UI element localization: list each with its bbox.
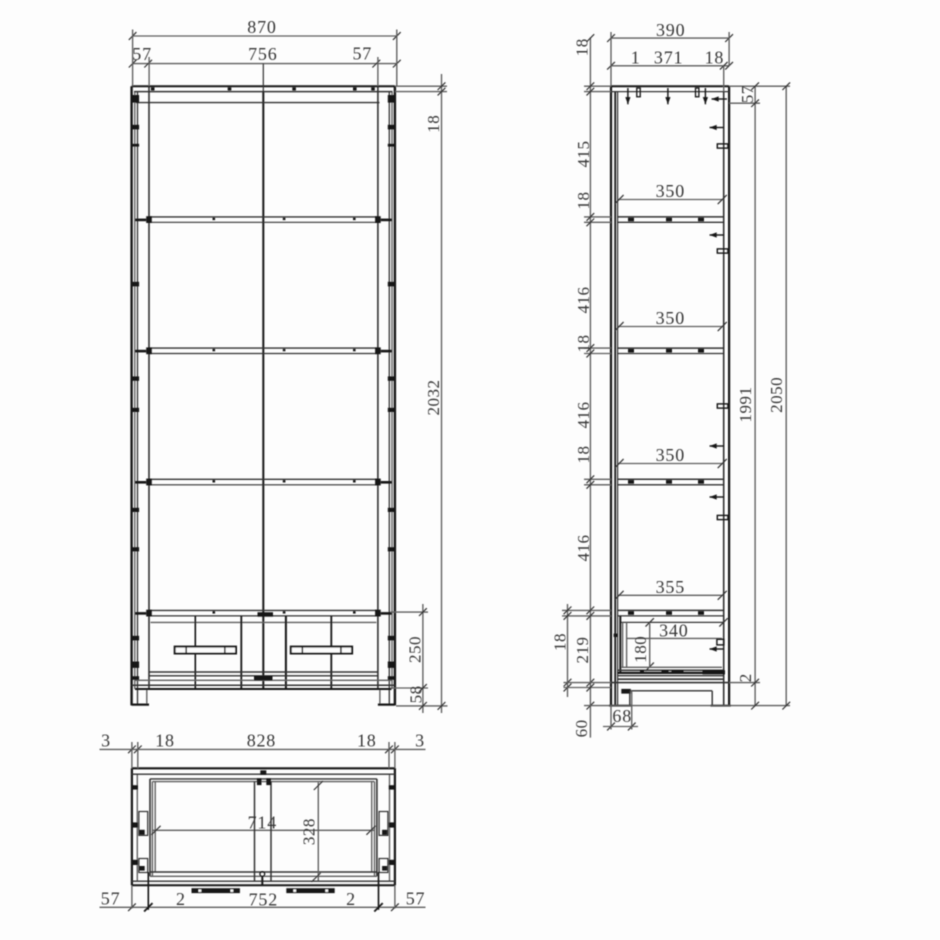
- svg-text:18: 18: [424, 115, 443, 133]
- svg-text:2: 2: [176, 889, 186, 909]
- svg-text:828: 828: [247, 730, 276, 750]
- svg-text:416: 416: [574, 402, 593, 429]
- svg-text:219: 219: [573, 637, 592, 664]
- svg-text:18: 18: [551, 633, 570, 651]
- svg-text:18: 18: [155, 730, 175, 750]
- svg-text:350: 350: [656, 308, 685, 328]
- svg-text:18: 18: [357, 730, 377, 750]
- svg-text:250: 250: [405, 636, 424, 663]
- svg-text:57: 57: [738, 85, 757, 103]
- svg-text:340: 340: [659, 620, 688, 640]
- svg-text:756: 756: [248, 44, 277, 64]
- svg-text:3: 3: [101, 730, 111, 750]
- svg-text:18: 18: [573, 38, 592, 56]
- svg-text:390: 390: [656, 20, 685, 40]
- svg-text:58: 58: [406, 685, 425, 703]
- svg-text:416: 416: [574, 535, 593, 562]
- svg-text:870: 870: [247, 17, 276, 37]
- svg-text:371: 371: [654, 47, 683, 67]
- svg-text:416: 416: [574, 287, 593, 314]
- svg-text:328: 328: [300, 818, 319, 845]
- svg-text:415: 415: [574, 141, 593, 168]
- svg-text:18: 18: [574, 446, 593, 464]
- svg-text:350: 350: [656, 181, 685, 201]
- svg-text:18: 18: [574, 335, 593, 353]
- svg-text:68: 68: [612, 706, 632, 726]
- svg-text:60: 60: [572, 719, 591, 737]
- svg-text:1: 1: [631, 47, 641, 67]
- svg-text:1991: 1991: [736, 387, 755, 423]
- svg-text:57: 57: [352, 43, 372, 63]
- svg-text:350: 350: [656, 445, 685, 465]
- svg-text:2050: 2050: [767, 377, 786, 413]
- svg-text:714: 714: [248, 812, 277, 832]
- svg-text:18: 18: [574, 192, 593, 210]
- svg-text:57: 57: [101, 889, 121, 909]
- svg-text:180: 180: [631, 636, 650, 663]
- svg-text:2: 2: [346, 889, 356, 909]
- svg-text:355: 355: [656, 577, 685, 597]
- svg-text:18: 18: [705, 47, 725, 67]
- svg-text:2032: 2032: [424, 380, 443, 416]
- svg-text:57: 57: [406, 889, 426, 909]
- svg-text:3: 3: [415, 730, 425, 750]
- svg-text:2: 2: [736, 673, 755, 682]
- svg-text:752: 752: [249, 889, 278, 909]
